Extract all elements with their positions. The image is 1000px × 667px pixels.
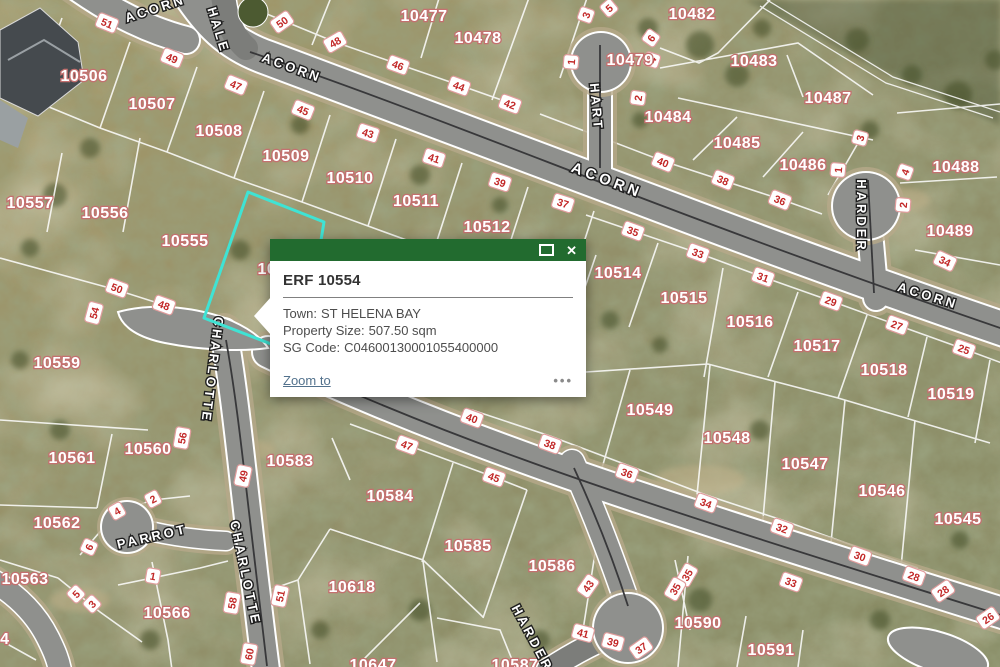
parcel-label[interactable]: 10591 [748,642,795,659]
parcel-label[interactable]: 10518 [861,362,908,379]
parcel-label[interactable]: 10559 [34,355,81,372]
parcel-label[interactable]: 10515 [661,290,708,307]
close-icon[interactable]: ✕ [566,244,577,257]
parcel-label[interactable]: 10555 [162,233,209,250]
parcel-label[interactable]: 10557 [7,195,54,212]
parcel-label[interactable]: 10478 [455,30,502,47]
popup-title: ERF 10554 [283,272,573,289]
parcel-label[interactable]: 10486 [780,157,827,174]
dimension-label: 60 [240,642,258,665]
dimension-label: 1 [563,54,579,69]
parcel-label[interactable]: 10566 [144,605,191,622]
parcel-label[interactable]: 10545 [935,511,982,528]
parcel-label[interactable]: 10585 [445,538,492,555]
svg-text:56: 56 [176,431,190,445]
parcel-label[interactable]: 10587 [492,657,539,667]
parcel-label[interactable]: 10510 [327,170,374,187]
parcel-label[interactable]: 10488 [933,159,980,176]
traffic-island [238,0,268,27]
dimension-label: 2 [895,197,911,212]
svg-text:60: 60 [243,647,257,661]
parcel-label[interactable]: 10482 [669,6,716,23]
parcel-label[interactable]: 10509 [263,148,310,165]
parcel-label[interactable]: 10583 [267,453,314,470]
field-sg-code: SG Code:C04600130001055400000 [283,339,573,356]
maximize-icon[interactable] [539,244,554,256]
parcel-label[interactable]: 10586 [529,558,576,575]
parcel-label[interactable]: 10564 [0,631,10,648]
parcel-label[interactable]: 10618 [329,579,376,596]
popup-body: ERF 10554 Town:ST HELENA BAY Property Si… [270,261,586,397]
field-town: Town:ST HELENA BAY [283,305,573,322]
parcel-label[interactable]: 10489 [927,223,974,240]
field-property-size: Property Size:507.50 sqm [283,322,573,339]
parcel-label[interactable]: 10546 [859,483,906,500]
parcel-label[interactable]: 10512 [464,219,511,236]
parcel-label[interactable]: 10479 [607,52,654,69]
popup-divider [283,297,573,298]
parcel-label[interactable]: 10556 [82,205,129,222]
parcel-label[interactable]: 10514 [595,265,642,282]
popup: ✕ ERF 10554 Town:ST HELENA BAY Property … [270,239,586,397]
parcel-label[interactable]: 10516 [727,314,774,331]
parcel-label[interactable]: 10485 [714,135,761,152]
parcel-label[interactable]: 10477 [401,8,448,25]
parcel-label[interactable]: 10548 [704,430,751,447]
popup-header: ✕ [270,239,586,261]
parcel-label[interactable]: 10484 [645,109,692,126]
dimension-label: 56 [173,426,191,449]
parcel-label[interactable]: 10561 [49,450,96,467]
parcel-label[interactable]: 10517 [794,338,841,355]
svg-text:1: 1 [833,166,845,173]
parcel-label[interactable]: 10487 [805,90,852,107]
parcel-label[interactable]: 10508 [196,123,243,140]
street-label: HARDER [854,179,869,253]
parcel-label[interactable]: 10519 [928,386,975,403]
parcel-label[interactable]: 10562 [34,515,81,532]
svg-text:1: 1 [566,58,578,65]
map-canvas[interactable]: 5149474550484644424341393735164240383635… [0,0,1000,667]
parcel-label[interactable]: 10506 [61,68,108,85]
more-options-button[interactable]: ••• [553,376,573,386]
svg-text:58: 58 [226,596,240,610]
parcel-label[interactable]: 10511 [393,193,439,210]
svg-text:2: 2 [898,201,910,208]
dimension-label: 3 [851,129,869,146]
parcel-label[interactable]: 10483 [731,53,778,70]
zoom-to-link[interactable]: Zoom to [283,373,331,388]
popup-callout-arrow [254,297,271,335]
parcel-label[interactable]: 10547 [782,456,829,473]
parcel-label[interactable]: 10647 [350,657,397,667]
dimension-label: 2 [630,90,647,106]
dimension-label: 58 [223,591,241,614]
parcel-label[interactable]: 10584 [367,488,414,505]
parcel-label[interactable]: 10590 [675,615,722,632]
dimension-label: 1 [830,162,846,177]
parcel-label[interactable]: 10549 [627,402,674,419]
dimension-label: 1 [145,567,161,584]
parcel-label[interactable]: 10563 [2,571,49,588]
parcel-label[interactable]: 10507 [129,96,176,113]
parcel-label[interactable]: 10560 [125,441,172,458]
